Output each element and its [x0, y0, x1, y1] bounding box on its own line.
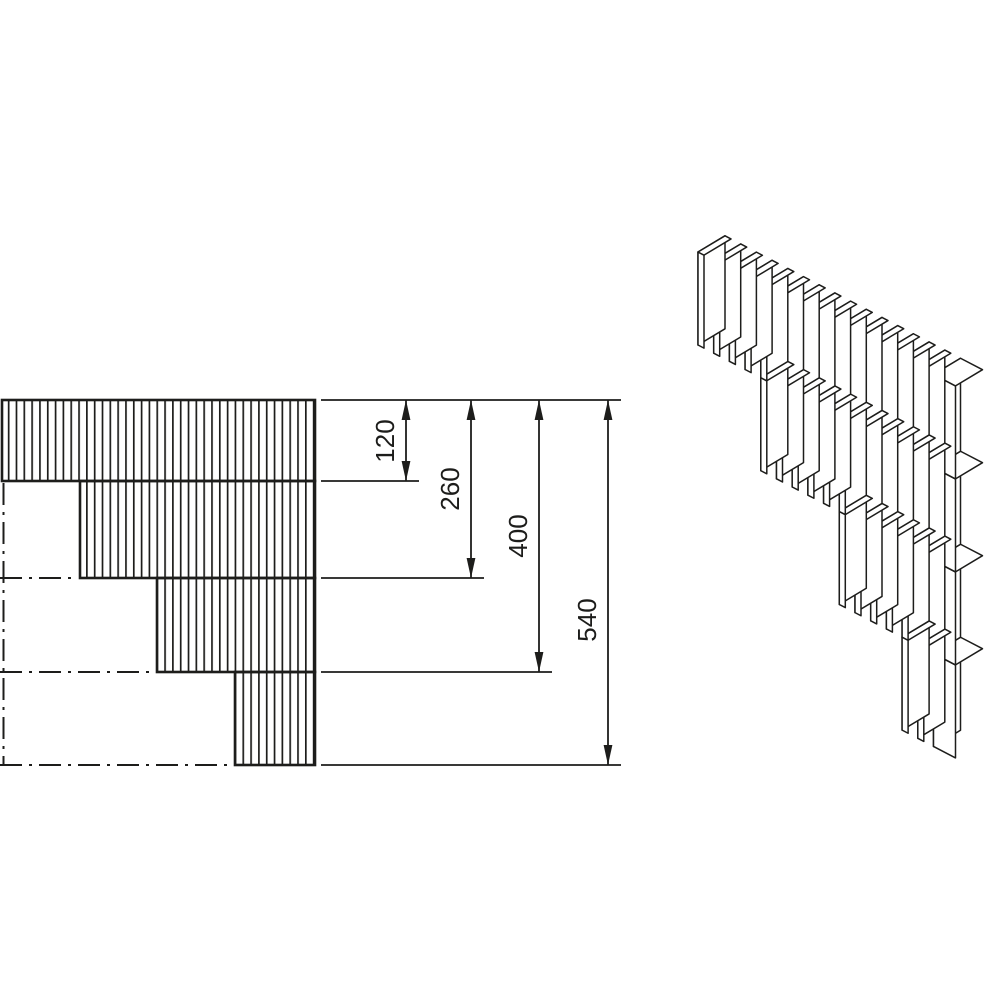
- elevation-course-2: [80, 481, 315, 578]
- slat-front-face: [839, 511, 845, 607]
- arrowhead-up: [535, 400, 544, 420]
- arrowhead-down: [467, 558, 476, 578]
- arrowhead-down: [604, 745, 613, 765]
- elevation-course-4: [235, 672, 315, 765]
- dimension-400: 400: [503, 400, 543, 672]
- technical-diagram: 120 260 400 540: [0, 0, 1000, 1000]
- slat-front-face: [761, 378, 767, 474]
- elevation-view: 120 260 400 540: [0, 400, 621, 765]
- arrowhead-up: [467, 400, 476, 420]
- dimension-label-540: 540: [572, 598, 602, 641]
- arrowhead-down: [402, 461, 411, 481]
- dimension-260: 260: [435, 400, 475, 578]
- elevation-course-1: [2, 400, 315, 481]
- arrowhead-down: [535, 652, 544, 672]
- dimension-label-120: 120: [370, 419, 400, 462]
- isometric-view: [698, 236, 983, 758]
- arrowhead-up: [604, 400, 613, 420]
- slat-front-face: [902, 637, 908, 733]
- dimension-540: 540: [572, 400, 612, 765]
- elevation-course-3: [157, 578, 315, 672]
- arrowhead-up: [402, 400, 411, 420]
- slat-front-face: [698, 252, 704, 348]
- technical-drawing-page: 120 260 400 540: [0, 0, 1000, 1000]
- dimension-label-400: 400: [503, 514, 533, 557]
- dimension-120: 120: [370, 400, 410, 481]
- dimension-label-260: 260: [435, 467, 465, 510]
